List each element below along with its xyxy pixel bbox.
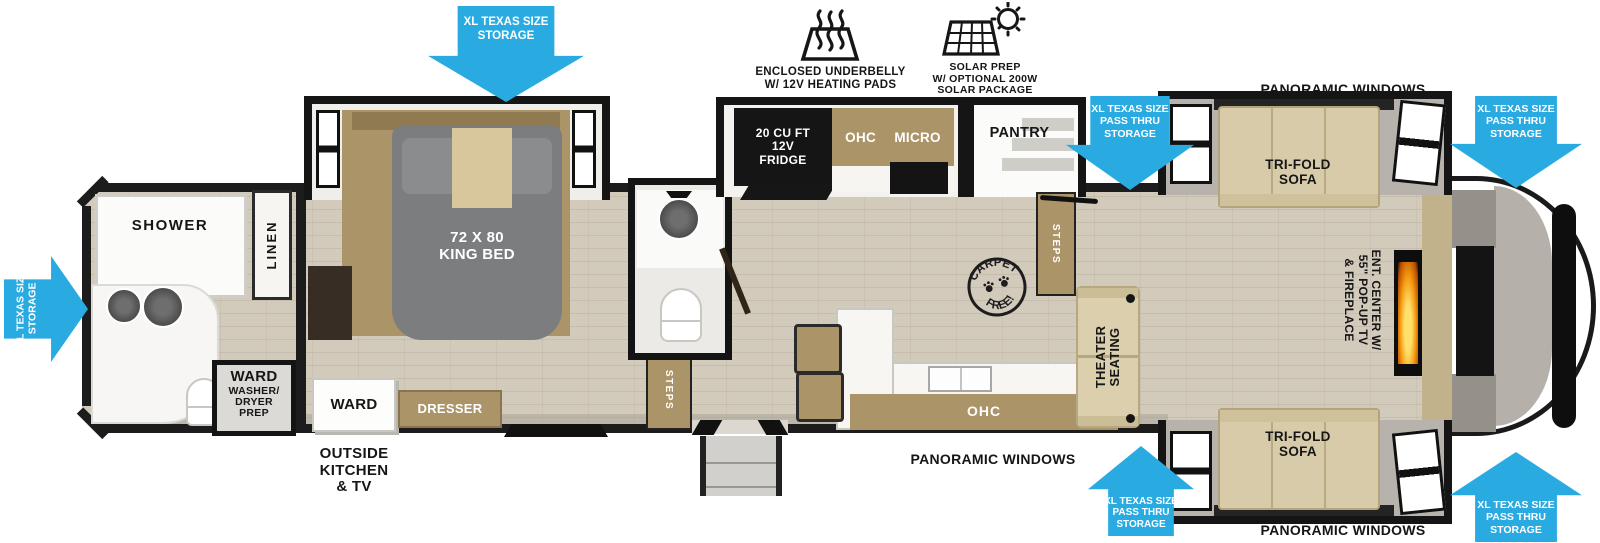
carpet-free-badge: CARPET FREE! bbox=[960, 250, 1034, 324]
window-slide-bottom-left bbox=[1170, 431, 1212, 511]
mid-bath-sink bbox=[658, 198, 700, 240]
bedroom-ward-label: WARD bbox=[330, 397, 377, 414]
window-slide-top-right bbox=[1392, 100, 1446, 186]
trifold-sofa-top-edge bbox=[1220, 194, 1378, 206]
mid-bath-toilet-seat-line bbox=[662, 320, 700, 322]
arrow-passthru-top-right: XL TEXAS SIZE PASS THRU STORAGE bbox=[1450, 96, 1582, 188]
bar-stool-1 bbox=[794, 324, 842, 374]
mid-bath-toilet bbox=[660, 288, 702, 342]
steps-bath-label-wrap: STEPS bbox=[629, 367, 709, 413]
arrow-storage-left: XL TEXAS SIZE STORAGE bbox=[4, 256, 88, 362]
steps-living-label: STEPS bbox=[1051, 224, 1062, 264]
bar-stool-2 bbox=[796, 372, 844, 422]
bedroom-tv-cabinet bbox=[308, 266, 352, 340]
dresser-label: DRESSER bbox=[418, 402, 483, 416]
fridge-counter bbox=[740, 184, 836, 200]
window-slide-bottom-right bbox=[1392, 429, 1446, 515]
panoramic-windows-label-bottom-right: PANORAMIC WINDOWS bbox=[1243, 523, 1443, 538]
arrow-storage-left-text: XL TEXAS SIZE STORAGE bbox=[15, 258, 40, 358]
trifold-sofa-bottom-label: TRI-FOLD SOFA bbox=[1228, 430, 1368, 460]
arrow-storage-bedroom: XL TEXAS SIZE STORAGE bbox=[428, 6, 584, 102]
ent-center-panel-top bbox=[1452, 190, 1496, 248]
rear-window-slot bbox=[1552, 204, 1576, 428]
floorplan-canvas: ENCLOSED UNDERBELLY W/ 12V HEATING PADS … bbox=[0, 0, 1600, 543]
fridge-label: 20 CU FT 12V FRIDGE bbox=[756, 127, 810, 167]
bath-sink-2 bbox=[142, 286, 184, 328]
solar-prep-icon bbox=[938, 2, 1030, 64]
kitchen-ohc-cabinet: OHC MICRO bbox=[832, 108, 954, 168]
arrow-passthru-bottom-right: XL TEXAS SIZE PASS THRU STORAGE bbox=[1450, 452, 1582, 542]
entry-outside-steps bbox=[700, 436, 782, 496]
shower-stall bbox=[95, 194, 247, 298]
pantry-label: PANTRY bbox=[972, 126, 1067, 142]
island-sink bbox=[928, 366, 992, 392]
ward-washer-box: WARD WASHER/ DRYER PREP bbox=[212, 360, 296, 436]
bedroom-window-left bbox=[316, 110, 340, 188]
outside-kitchen-label: OUTSIDE KITCHEN & TV bbox=[298, 446, 410, 496]
window-slide-top-left bbox=[1170, 104, 1212, 184]
fridge: 20 CU FT 12V FRIDGE bbox=[734, 108, 832, 186]
outside-kitchen-hatch bbox=[504, 424, 608, 437]
popup-tv-slot bbox=[1456, 246, 1494, 376]
ent-center-beige-band bbox=[1422, 192, 1452, 424]
kitchen-ohc-label: OHC bbox=[845, 131, 876, 146]
ent-center-label: ENT. CENTER W/ 55" POP-UP TV & FIREPLACE bbox=[1342, 210, 1382, 390]
king-bed-label: 72 X 80 KING BED bbox=[407, 230, 547, 263]
shower-label: SHOWER bbox=[100, 218, 240, 235]
theater-label: THEATER SEATING bbox=[1094, 292, 1123, 422]
steps-bath-label: STEPS bbox=[664, 370, 675, 410]
arrow-passthru-top-right-text: XL TEXAS SIZE PASS THRU STORAGE bbox=[1450, 96, 1582, 140]
trifold-sofa-top-label: TRI-FOLD SOFA bbox=[1228, 158, 1368, 188]
king-bed-pillow bbox=[452, 128, 512, 208]
bedroom-window-right bbox=[572, 110, 596, 188]
micro-label: MICRO bbox=[894, 131, 941, 146]
wall-bath-bedroom bbox=[296, 192, 306, 424]
panoramic-windows-label-bottom-mid: PANORAMIC WINDOWS bbox=[893, 452, 1093, 467]
arrow-storage-bedroom-text: XL TEXAS SIZE STORAGE bbox=[428, 6, 584, 43]
theater-label-wrap: THEATER SEATING bbox=[1087, 292, 1129, 422]
ward-washer-sub: WASHER/ DRYER PREP bbox=[217, 386, 291, 419]
solar-label: SOLAR PREP W/ OPTIONAL 200W SOLAR PACKAG… bbox=[925, 62, 1045, 97]
ward-washer-title: WARD bbox=[217, 369, 291, 386]
pantry-shelf-3 bbox=[1002, 158, 1074, 171]
fireplace-flame bbox=[1398, 262, 1418, 364]
badge-paw-prints bbox=[982, 275, 1010, 293]
heating-pads-icon bbox=[795, 4, 865, 64]
microwave-box bbox=[890, 162, 948, 194]
underbelly-label: ENCLOSED UNDERBELLY W/ 12V HEATING PADS bbox=[748, 66, 913, 91]
linen-label: LINEN bbox=[265, 220, 279, 270]
ent-center-label-wrap: ENT. CENTER W/ 55" POP-UP TV & FIREPLACE bbox=[1340, 210, 1384, 390]
island-ohc-label: OHC bbox=[967, 404, 1001, 419]
trifold-sofa-bottom-edge bbox=[1220, 410, 1378, 422]
bedroom-ward-box: WARD bbox=[312, 378, 396, 432]
ent-center-panel-bottom bbox=[1452, 374, 1496, 432]
bath-sink-1 bbox=[106, 288, 142, 324]
dresser: DRESSER bbox=[398, 390, 502, 428]
arrow-passthru-bottom-right-text: XL TEXAS SIZE PASS THRU STORAGE bbox=[1450, 499, 1582, 542]
